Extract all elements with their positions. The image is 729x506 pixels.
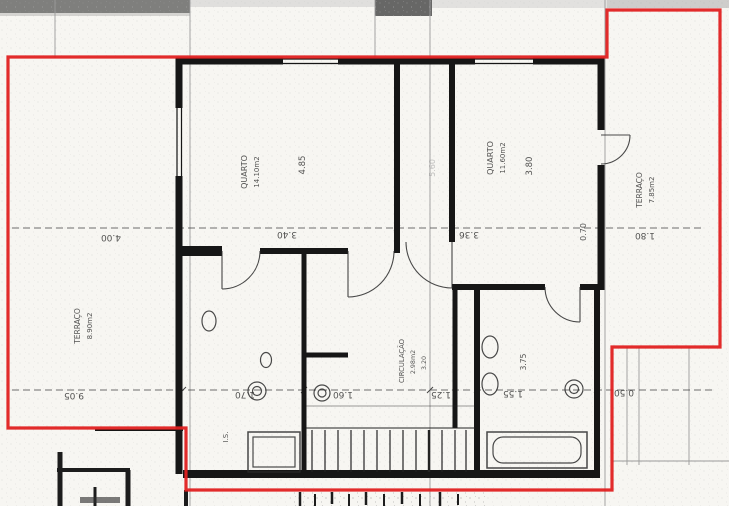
label-terraco-left-name: TERRAÇO — [73, 308, 82, 345]
dim-1-70: 1.70 — [235, 389, 255, 399]
label-is-left: I.S. — [222, 432, 230, 443]
dim-1-80: 1.80 — [635, 230, 655, 240]
label-quarto-right-name: QUARTO — [486, 141, 495, 175]
label-quarto-left-dim: 4.85 — [298, 156, 308, 175]
label-quarto-left-name: QUARTO — [240, 155, 249, 189]
label-circulacao-area: 2.98m2 — [410, 350, 417, 374]
floor-plan-scan: QUARTO 14.10m2 4.85 QUARTO 11.60m2 3.80 … — [0, 0, 729, 506]
label-quarto-right-area: 11.60m2 — [499, 142, 507, 173]
dim-1-55: 1.55 — [503, 388, 523, 398]
label-terraco-right-name: TERRAÇO — [635, 172, 644, 209]
dim-4-00: 4.00 — [101, 232, 121, 242]
dim-0-70: 0.70 — [579, 223, 588, 241]
dim-0-50: 0.50 — [614, 387, 634, 397]
label-quarto-left-area: 14.10m2 — [253, 156, 261, 187]
dim-1-25: 1.25 — [431, 389, 451, 399]
label-terraco-left-area: 8.90m2 — [86, 313, 94, 340]
label-terraco-right-area: 7.85m2 — [648, 177, 656, 204]
dim-3-75: 3.75 — [519, 353, 528, 370]
label-circulacao-dim: 3.20 — [421, 356, 428, 370]
dim-9-05: 9.05 — [64, 390, 84, 400]
floor-plan-svg: QUARTO 14.10m2 4.85 QUARTO 11.60m2 3.80 … — [0, 0, 729, 506]
dim-3-36: 3.36 — [459, 229, 479, 239]
dim-1-60: 1.60 — [333, 389, 353, 399]
label-quarto-right-dim: 3.80 — [525, 157, 535, 176]
label-circulacao-name: CIRCULAÇÃO — [397, 339, 406, 383]
dim-3-40: 3.40 — [277, 229, 297, 239]
dim-5-60: 5.60 — [428, 159, 437, 177]
